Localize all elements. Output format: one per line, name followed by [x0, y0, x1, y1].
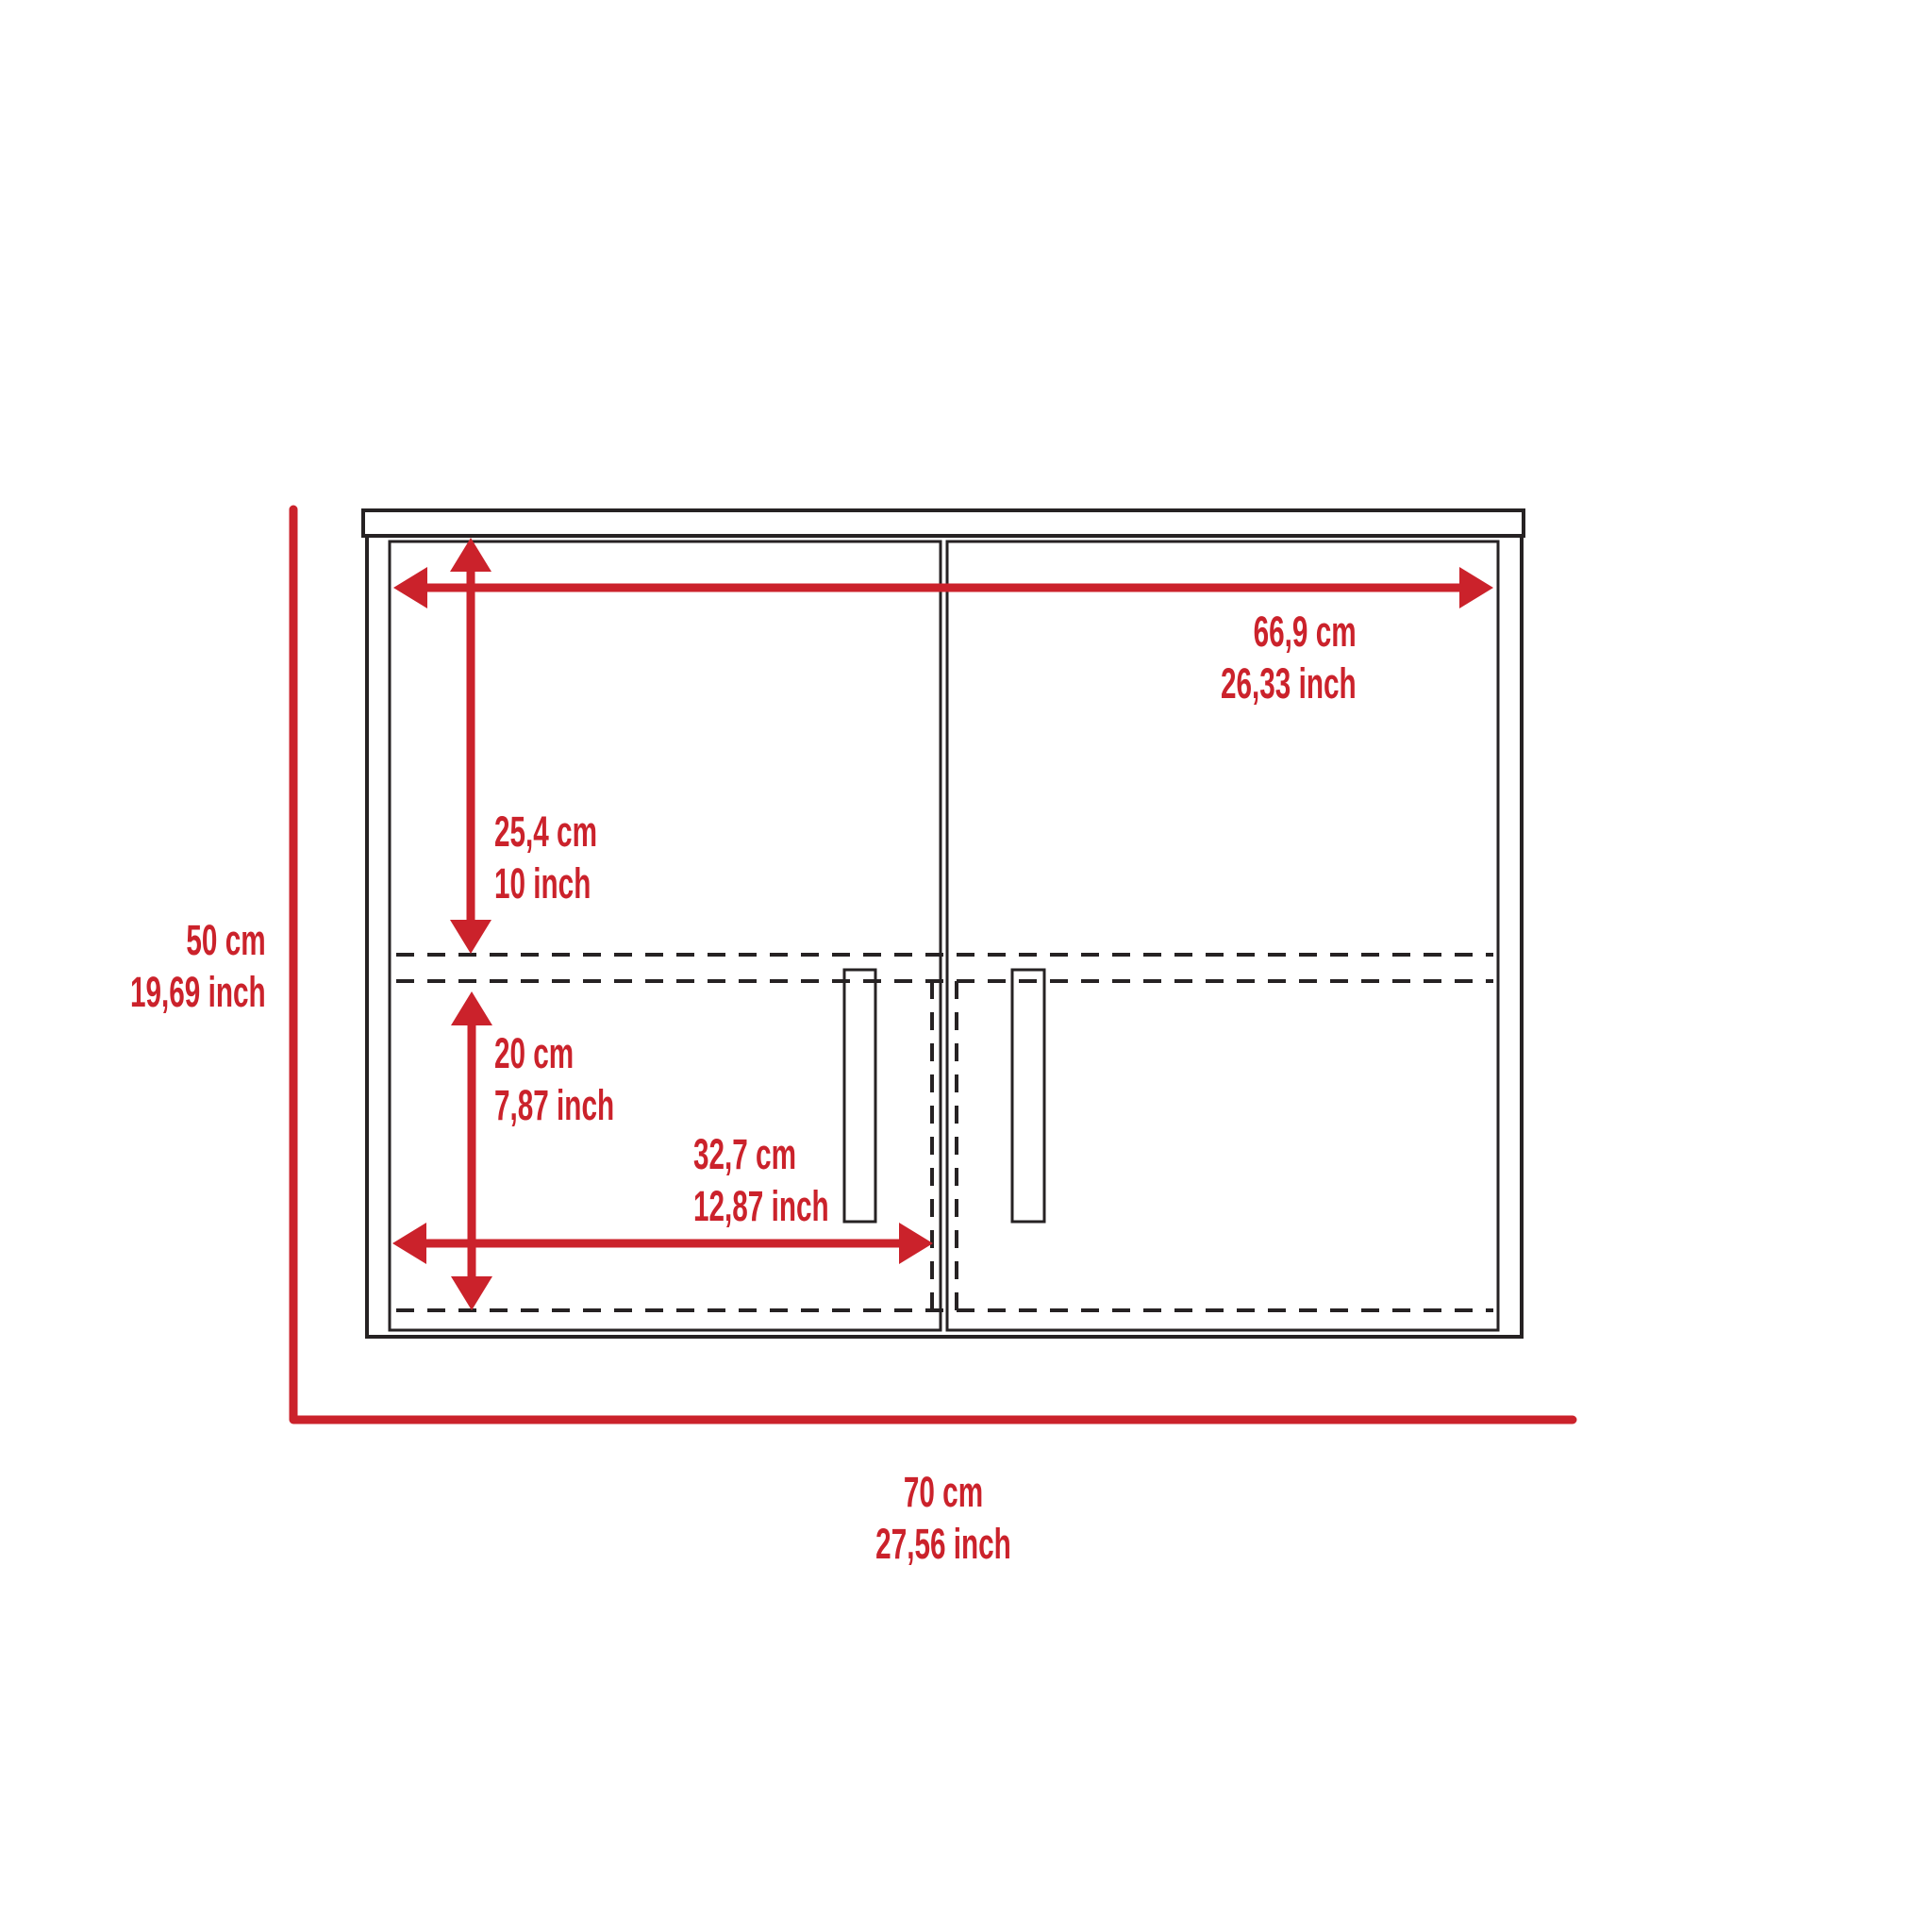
- door-width-inch: 12,87 inch: [693, 1180, 829, 1232]
- overall-width-inch: 27,56 inch: [757, 1518, 1130, 1570]
- interior-width-inch: 26,33 inch: [1221, 658, 1357, 709]
- interior-width-cm: 66,9 cm: [1221, 606, 1357, 658]
- cabinet-top-panel: [363, 510, 1524, 536]
- label-overall-height: 50 cm 19,69 inch: [130, 914, 266, 1018]
- upper-section-height-inch: 10 inch: [494, 858, 597, 909]
- overall-height-cm: 50 cm: [130, 914, 266, 966]
- overall-width-cm: 70 cm: [757, 1466, 1130, 1518]
- label-lower-section-height: 20 cm 7,87 inch: [494, 1027, 614, 1131]
- door-handle-left: [844, 970, 875, 1222]
- lower-section-height-inch: 7,87 inch: [494, 1079, 614, 1131]
- dimension-diagram: 66,9 cm 26,33 inch 25,4 cm 10 inch 20 cm…: [0, 0, 1932, 1932]
- label-upper-section-height: 25,4 cm 10 inch: [494, 806, 597, 909]
- lower-section-height-cm: 20 cm: [494, 1027, 614, 1079]
- label-interior-width: 66,9 cm 26,33 inch: [1221, 606, 1357, 709]
- label-door-width: 32,7 cm 12,87 inch: [693, 1128, 829, 1232]
- door-handle-right: [1012, 970, 1044, 1222]
- label-overall-width: 70 cm 27,56 inch: [757, 1466, 1130, 1570]
- overall-height-inch: 19,69 inch: [130, 966, 266, 1018]
- upper-section-height-cm: 25,4 cm: [494, 806, 597, 858]
- door-width-cm: 32,7 cm: [693, 1128, 829, 1180]
- diagram-artwork: [0, 0, 1932, 1932]
